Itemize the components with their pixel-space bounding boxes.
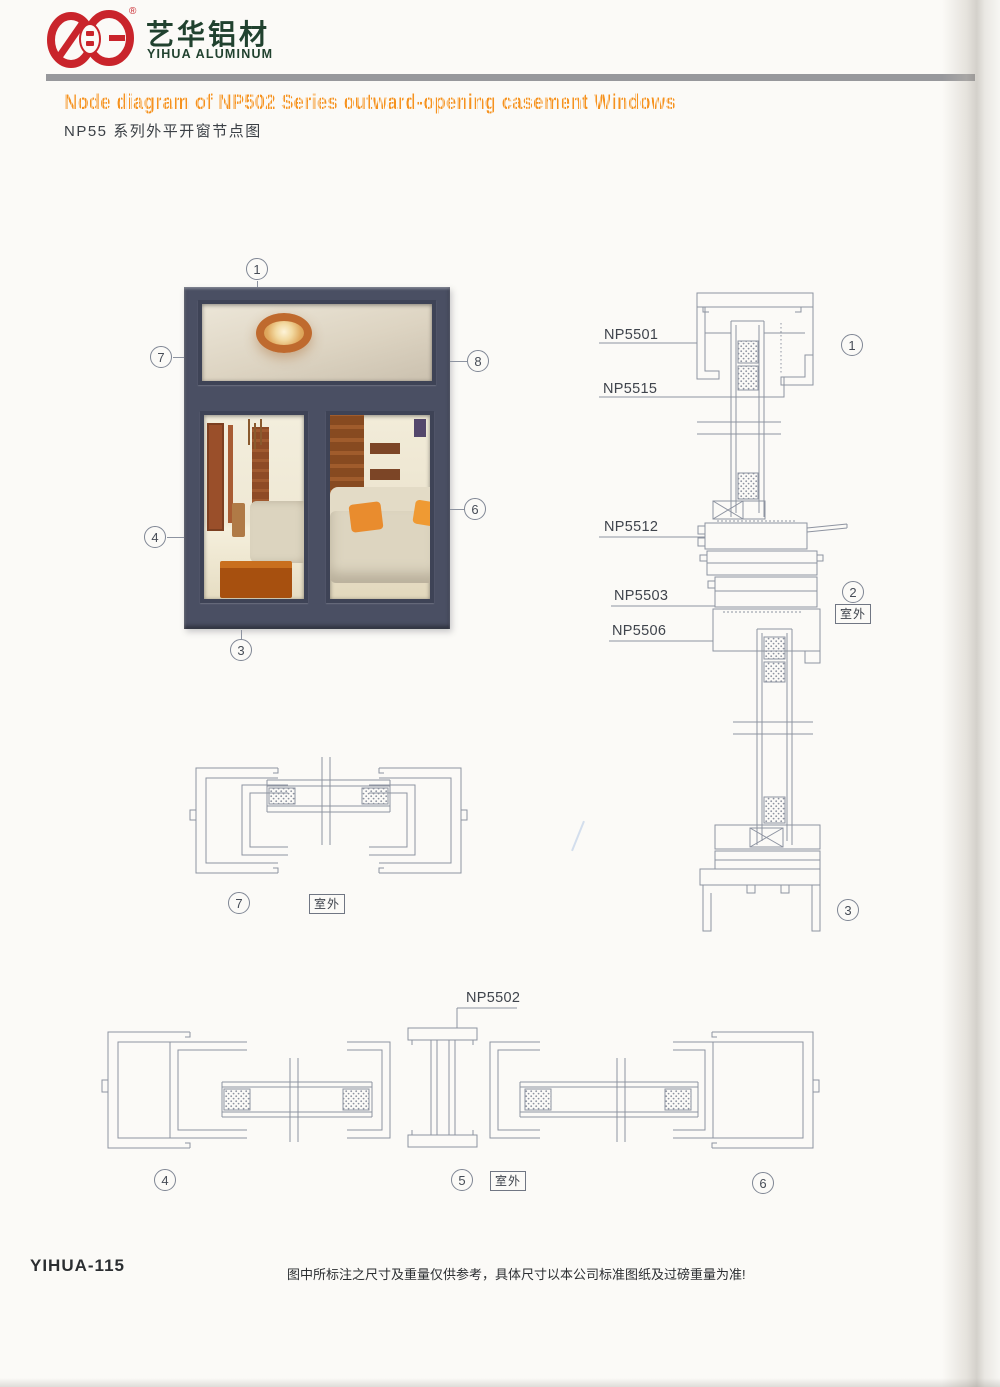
outdoor-label-vertical: 室外 — [835, 604, 871, 624]
label-np5506: NP5506 — [612, 623, 666, 639]
label-np5502: NP5502 — [466, 990, 520, 1006]
callout-3-window: 3 — [230, 639, 252, 661]
door — [207, 423, 224, 531]
wood-shelf — [370, 443, 400, 454]
glass-unit-left — [222, 1058, 372, 1142]
pendant-light — [248, 419, 250, 445]
plan-section-bottom-diagram — [100, 990, 910, 1165]
registered-trademark: ® — [129, 6, 136, 17]
brand-logo-icon — [46, 8, 138, 68]
glass-unit-plan — [267, 757, 390, 845]
callout-1-section: 1 — [841, 334, 863, 356]
sash-bottom-bridge — [713, 501, 765, 519]
right-casement-pane — [326, 411, 434, 603]
callout-6-window: 6 — [464, 498, 486, 520]
callout-4-section: 4 — [154, 1169, 176, 1191]
sill-assembly-profile — [700, 825, 820, 931]
label-np5501: NP5501 — [604, 327, 658, 343]
footer-disclaimer: 图中所标注之尺寸及重量仅供参考，具体尺寸以本公司标准图纸及过磅重量为准! — [287, 1264, 746, 1283]
transom-profile — [698, 521, 847, 549]
page-title-cn: NP55 系列外平开窗节点图 — [64, 120, 262, 141]
page-title-en: Node diagram of NP502 Series outward-ope… — [64, 91, 676, 115]
scan-pen-mark — [571, 821, 585, 851]
picture-frame — [414, 419, 426, 437]
left-casement-pane — [200, 411, 308, 603]
callout-1-window: 1 — [246, 258, 268, 280]
header-divider-bar — [46, 74, 975, 81]
callout-4-tick — [167, 537, 184, 538]
right-jamb-profile — [673, 1032, 819, 1148]
ceiling-light — [256, 313, 312, 353]
callout-3-section: 3 — [837, 899, 859, 921]
callout-5-section: 5 — [451, 1169, 473, 1191]
callout-8-tick — [450, 361, 467, 362]
right-jamb-profile — [369, 768, 467, 873]
chair — [232, 503, 245, 537]
callout-6-section: 6 — [752, 1172, 774, 1194]
brand-name-en: YIHUA ALUMINUM — [147, 47, 273, 61]
coffee-table — [220, 561, 292, 598]
np5502-leader-line — [457, 1008, 517, 1028]
page-edge-shadow — [942, 0, 1000, 1387]
catalog-page: ® 艺华铝材 YIHUA ALUMINUM Node diagram of NP… — [0, 0, 1000, 1387]
pillow — [412, 499, 434, 526]
left-jamb-profile — [190, 768, 288, 873]
armchair — [250, 501, 308, 563]
callout-1-tick — [257, 281, 258, 287]
footer-doc-code: YIHUA-115 — [30, 1256, 125, 1276]
lower-frame-head-profile — [700, 551, 823, 575]
callout-8-window: 8 — [467, 350, 489, 372]
window-photo-figure — [184, 287, 450, 629]
outdoor-label-plan-bottom: 室外 — [490, 1171, 526, 1191]
center-mullion-profile — [347, 1028, 540, 1147]
glass-unit-right — [520, 1058, 698, 1142]
label-np5503: NP5503 — [614, 588, 668, 604]
callout-6-tick — [450, 509, 464, 510]
glass-unit-upper — [697, 321, 781, 517]
callout-3-tick — [241, 630, 242, 639]
callout-7-section: 7 — [228, 892, 250, 914]
outdoor-label-plan-head: 室外 — [309, 894, 345, 914]
transom-pane — [198, 300, 436, 385]
label-np5512: NP5512 — [604, 519, 658, 535]
plan-section-head-diagram — [170, 755, 470, 880]
page-bottom-shadow — [0, 1378, 1000, 1387]
frame-profile-np5503 — [708, 577, 817, 607]
pillow — [348, 501, 383, 533]
callout-7-window: 7 — [150, 346, 172, 368]
callout-2-section: 2 — [842, 581, 864, 603]
label-np5515: NP5515 — [603, 381, 657, 397]
glass-unit-lower — [733, 629, 813, 845]
callout-4-window: 4 — [144, 526, 166, 548]
callout-7-tick — [173, 357, 184, 358]
